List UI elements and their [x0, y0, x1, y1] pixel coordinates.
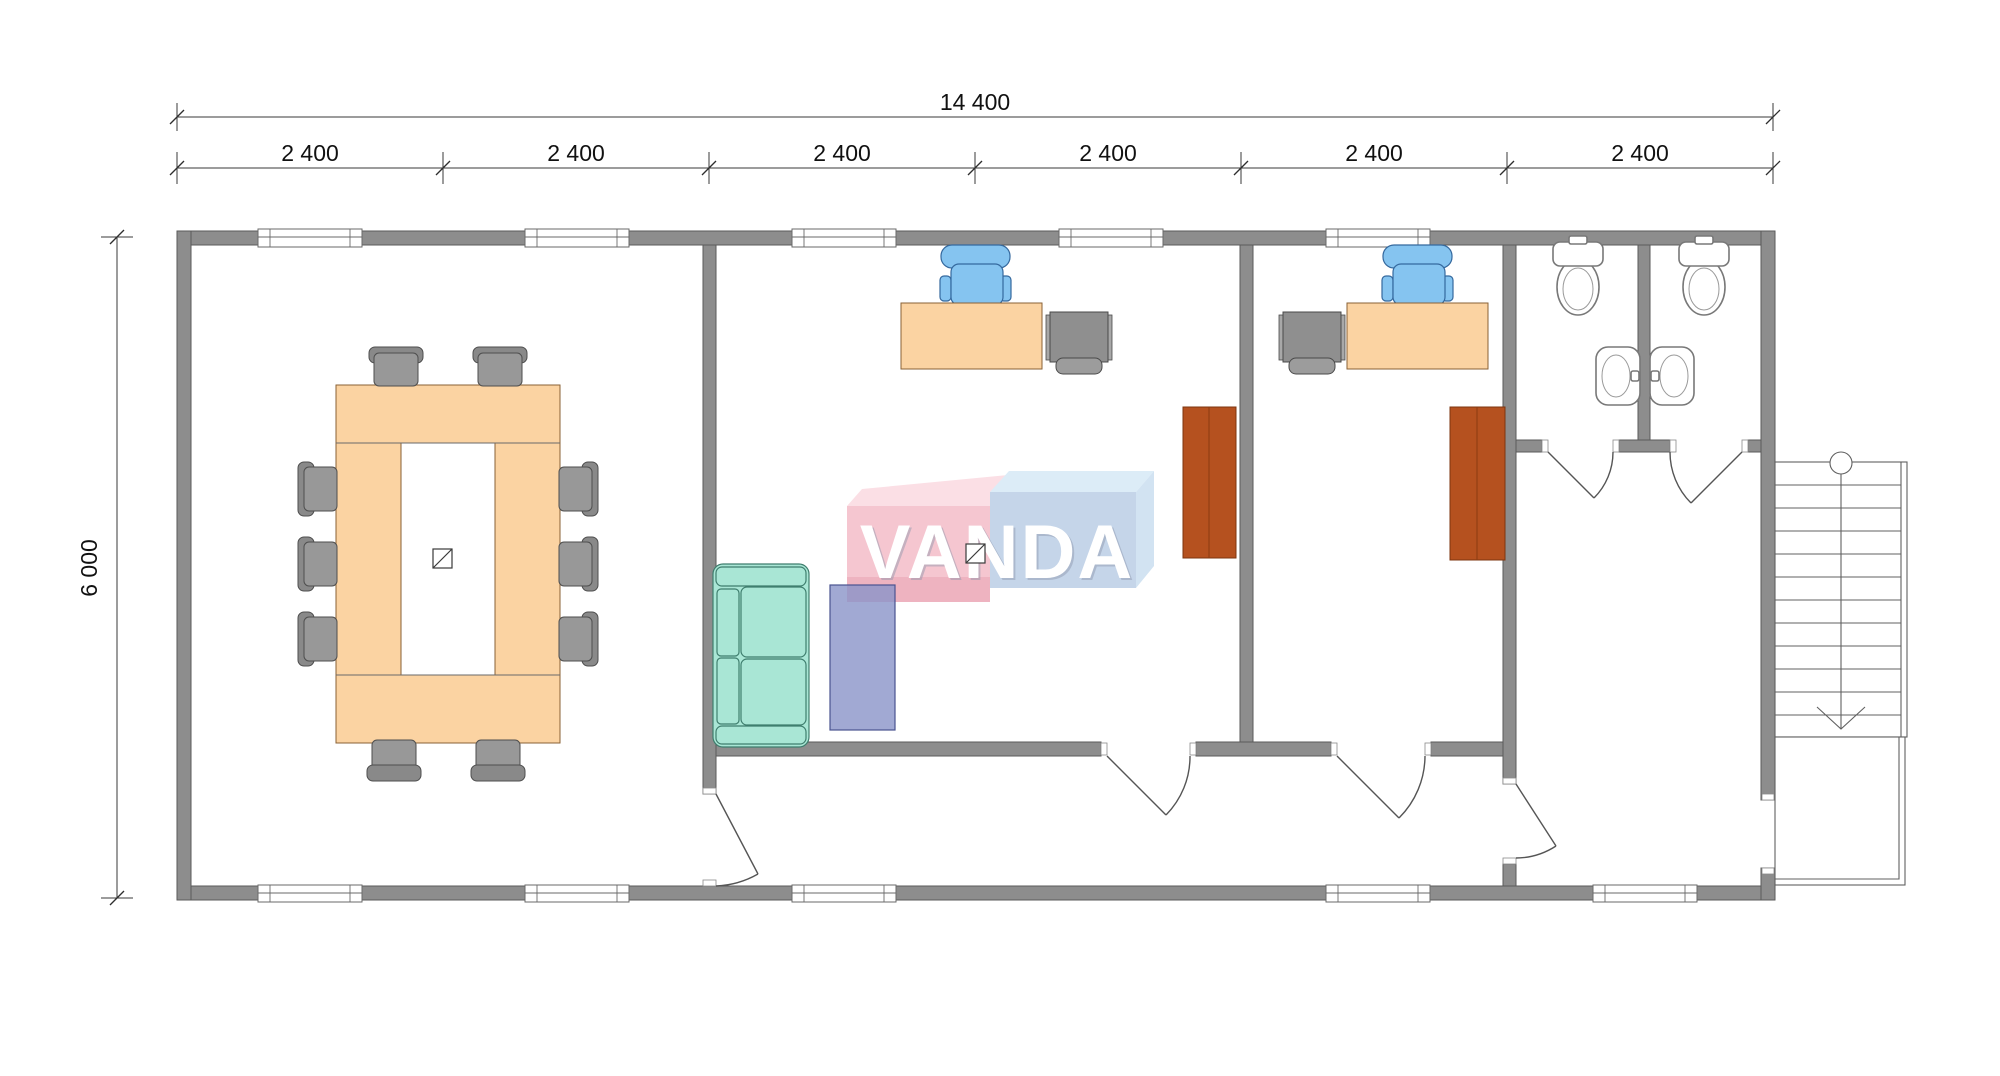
floor-box-symbol: [966, 544, 985, 563]
dimension-height: 6 000: [76, 230, 133, 905]
logo-pink-top-face: [847, 475, 1008, 506]
window: [525, 229, 629, 247]
chair: [559, 537, 598, 591]
dim-label-segment: 2 400: [1345, 140, 1403, 166]
wall-corridor-b: [1196, 742, 1331, 756]
chair: [367, 740, 421, 781]
logo-text: VANDA: [860, 510, 1135, 595]
dim-label-height: 6 000: [76, 539, 102, 597]
sofa: [713, 564, 809, 747]
dim-label-segment: 2 400: [1079, 140, 1137, 166]
rug: [830, 585, 895, 730]
window: [792, 885, 896, 902]
floor-plan-drawing: VANDA VANDA 14 400: [0, 0, 2000, 1076]
dim-label-segment: 2 400: [813, 140, 871, 166]
lounge-area: [713, 564, 809, 747]
wall-stub-below-door: [1503, 864, 1516, 886]
wall-office-office: [1240, 245, 1253, 742]
window: [1059, 229, 1163, 247]
chair: [473, 347, 527, 386]
floor-box-symbol: [433, 549, 452, 568]
door: [703, 788, 758, 886]
door: [1101, 743, 1196, 815]
stair-landing: [1775, 737, 1905, 885]
office-chair: [1382, 245, 1453, 305]
wall-bathroom-divider: [1638, 245, 1650, 440]
door: [1331, 743, 1431, 818]
stair-post-icon: [1830, 452, 1852, 474]
chair: [298, 612, 337, 666]
desk: [1347, 303, 1488, 369]
wardrobe: [1183, 407, 1236, 558]
wall-bathroom-bottom-a: [1516, 440, 1542, 452]
chair: [369, 347, 423, 386]
dim-label-segment: 2 400: [1611, 140, 1669, 166]
chair: [298, 462, 337, 516]
dimension-total-width: 14 400: [170, 89, 1780, 131]
wardrobe: [1450, 407, 1505, 560]
vanda-watermark: VANDA VANDA: [847, 471, 1154, 602]
window: [792, 229, 896, 247]
cabinet: [1046, 312, 1112, 374]
dim-label-segment: 2 400: [281, 140, 339, 166]
wall-bathroom-bottom-c: [1748, 440, 1761, 452]
sink-icon: [1596, 347, 1640, 405]
toilet-icon: [1553, 236, 1603, 315]
cabinet: [1279, 312, 1345, 374]
wall-bottom: [177, 886, 1775, 900]
toilet-icon: [1679, 236, 1729, 315]
floor-plan-canvas: VANDA VANDA 14 400: [0, 0, 2000, 1076]
wall-bathroom-bottom-b: [1619, 440, 1670, 452]
window: [525, 885, 629, 902]
desk: [901, 303, 1042, 369]
staircase: [1775, 452, 1907, 885]
sink-icon: [1650, 347, 1694, 405]
chair: [471, 740, 525, 781]
office-right: [1279, 245, 1505, 560]
chair: [298, 537, 337, 591]
dimension-segments: 2 400 2 400 2 400 2 400 2 400 2 400: [170, 140, 1780, 184]
office-chair: [940, 245, 1011, 305]
chair: [559, 612, 598, 666]
window: [258, 885, 362, 902]
door: [1670, 440, 1748, 503]
logo-blue-top-face: [990, 471, 1154, 492]
wall-corridor-c: [1431, 742, 1503, 756]
chair: [559, 462, 598, 516]
wall-top: [177, 231, 1775, 245]
wall-right-upper: [1761, 231, 1775, 800]
window: [1326, 229, 1430, 247]
window: [258, 229, 362, 247]
window: [1593, 885, 1697, 902]
dim-label-total: 14 400: [940, 89, 1010, 115]
door: [1503, 778, 1556, 864]
door: [1542, 440, 1619, 498]
dim-label-segment: 2 400: [547, 140, 605, 166]
wall-left: [177, 231, 191, 900]
window: [1326, 885, 1430, 902]
